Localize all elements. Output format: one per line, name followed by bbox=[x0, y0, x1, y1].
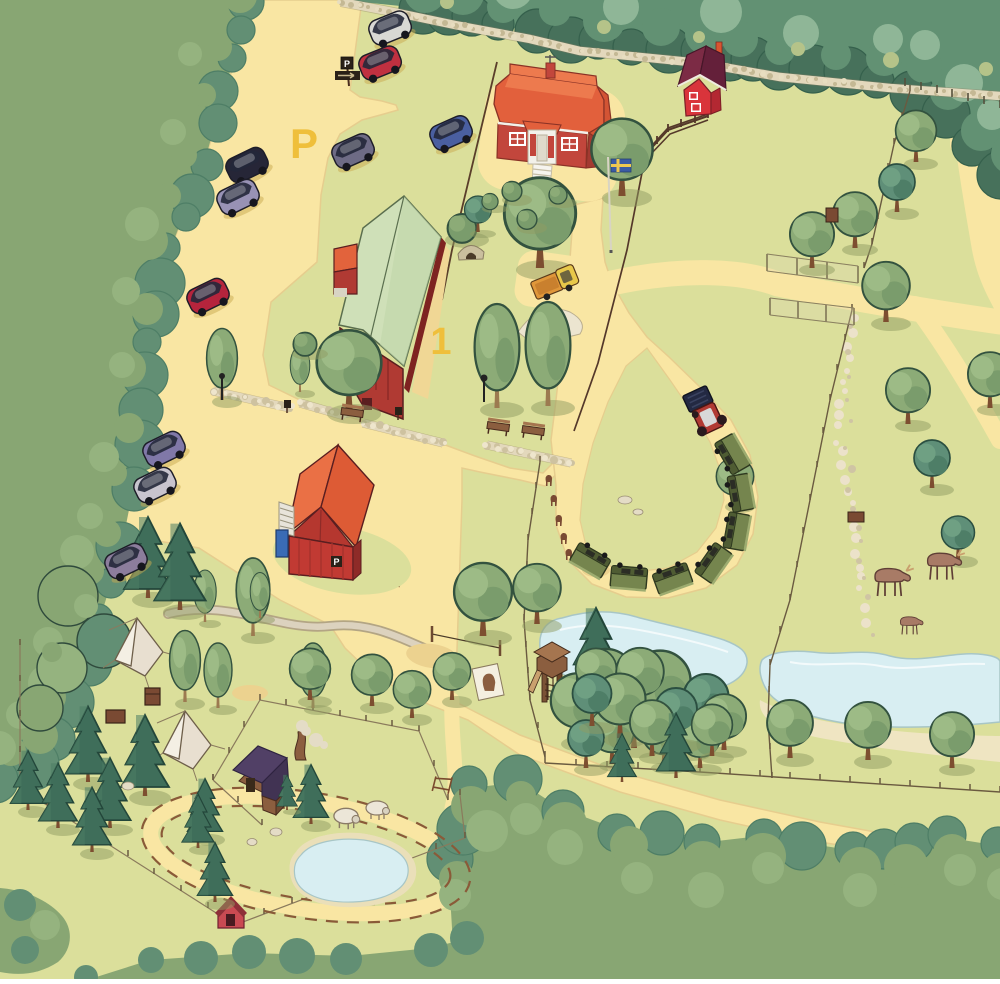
svg-text:P: P bbox=[290, 120, 318, 167]
svg-text:P: P bbox=[344, 59, 350, 69]
svg-text:1: 1 bbox=[430, 321, 451, 363]
svg-text:P: P bbox=[333, 557, 339, 567]
